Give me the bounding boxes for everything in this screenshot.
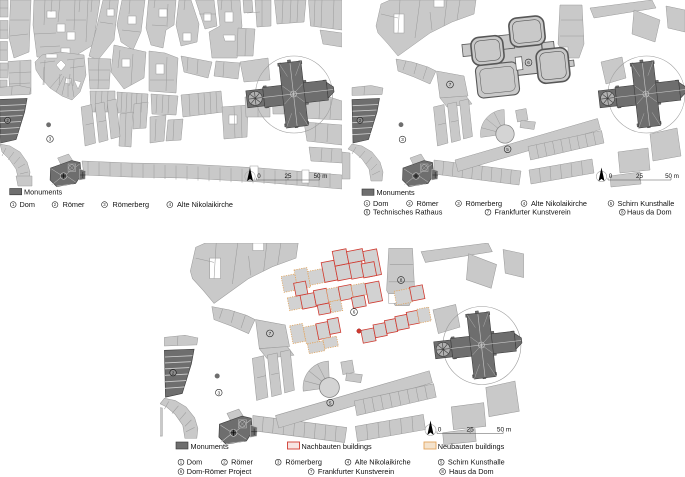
svg-text:3: 3 (49, 137, 52, 143)
svg-text:6: 6 (180, 469, 183, 474)
svg-text:3: 3 (103, 202, 106, 207)
svg-text:2: 2 (408, 201, 411, 206)
svg-text:7: 7 (487, 210, 490, 215)
svg-text:Monuments: Monuments (191, 442, 229, 451)
svg-text:25: 25 (636, 173, 643, 180)
svg-text:50 m: 50 m (665, 173, 679, 180)
svg-text:7: 7 (310, 469, 313, 474)
svg-text:Haus da Dom: Haus da Dom (627, 208, 672, 217)
svg-text:Monuments: Monuments (377, 188, 415, 197)
svg-text:Dom-Römer Project: Dom-Römer Project (187, 467, 251, 476)
svg-text:Römer: Römer (417, 199, 439, 208)
svg-text:2: 2 (54, 202, 57, 207)
svg-text:5: 5 (440, 460, 443, 465)
svg-text:5: 5 (610, 201, 613, 206)
svg-text:Römerberg: Römerberg (285, 458, 322, 467)
svg-text:8: 8 (441, 469, 444, 474)
svg-text:2: 2 (223, 460, 226, 465)
svg-text:3: 3 (457, 201, 460, 206)
svg-text:Neubauten buildings: Neubauten buildings (438, 442, 505, 451)
svg-text:4: 4 (523, 201, 526, 206)
svg-text:8: 8 (400, 278, 403, 283)
svg-text:5: 5 (329, 400, 332, 405)
svg-text:1: 1 (366, 201, 369, 206)
svg-text:25: 25 (285, 173, 292, 180)
svg-text:50 m: 50 m (497, 426, 511, 433)
svg-text:Römer: Römer (63, 200, 85, 209)
svg-text:8: 8 (621, 210, 624, 215)
svg-text:6: 6 (527, 60, 530, 65)
svg-text:Dom: Dom (373, 199, 388, 208)
svg-text:1: 1 (180, 460, 183, 465)
svg-text:50 m: 50 m (314, 173, 328, 180)
svg-text:3: 3 (401, 137, 404, 143)
svg-text:Frankfurter Kunstverein: Frankfurter Kunstverein (495, 208, 571, 217)
svg-text:2: 2 (172, 370, 175, 376)
svg-text:Dom: Dom (20, 200, 35, 209)
svg-text:Alte Nikolaikirche: Alte Nikolaikirche (355, 458, 411, 467)
svg-text:6: 6 (366, 210, 369, 215)
svg-text:Frankfurter Kunstverein: Frankfurter Kunstverein (318, 467, 394, 476)
svg-text:Nachbauten buildings: Nachbauten buildings (302, 442, 373, 451)
svg-text:Technisches Rathaus: Technisches Rathaus (373, 208, 443, 217)
svg-text:3: 3 (277, 460, 280, 465)
svg-text:1: 1 (12, 202, 15, 207)
svg-text:Monuments: Monuments (24, 187, 62, 196)
svg-text:Schirn Kunsthalle: Schirn Kunsthalle (618, 199, 675, 208)
svg-text:0: 0 (438, 426, 442, 433)
svg-text:Alte Nikolaikirche: Alte Nikolaikirche (177, 200, 233, 209)
svg-text:Römer: Römer (231, 458, 253, 467)
svg-text:0: 0 (609, 173, 613, 180)
svg-text:7: 7 (269, 331, 272, 336)
svg-text:0: 0 (257, 173, 261, 180)
svg-text:4: 4 (347, 460, 350, 465)
svg-text:Alte Nikolaikirche: Alte Nikolaikirche (531, 199, 587, 208)
svg-text:6: 6 (353, 310, 356, 315)
svg-text:Römerberg: Römerberg (466, 199, 503, 208)
svg-text:7: 7 (449, 82, 452, 87)
svg-text:3: 3 (217, 390, 220, 396)
svg-text:Haus da Dom: Haus da Dom (449, 467, 494, 476)
svg-text:Römerberg: Römerberg (113, 200, 150, 209)
svg-text:4: 4 (169, 202, 172, 207)
svg-text:25: 25 (466, 426, 474, 433)
svg-text:Schirn Kunsthalle: Schirn Kunsthalle (448, 458, 505, 467)
svg-text:Dom: Dom (187, 458, 202, 467)
svg-text:5: 5 (506, 147, 509, 152)
